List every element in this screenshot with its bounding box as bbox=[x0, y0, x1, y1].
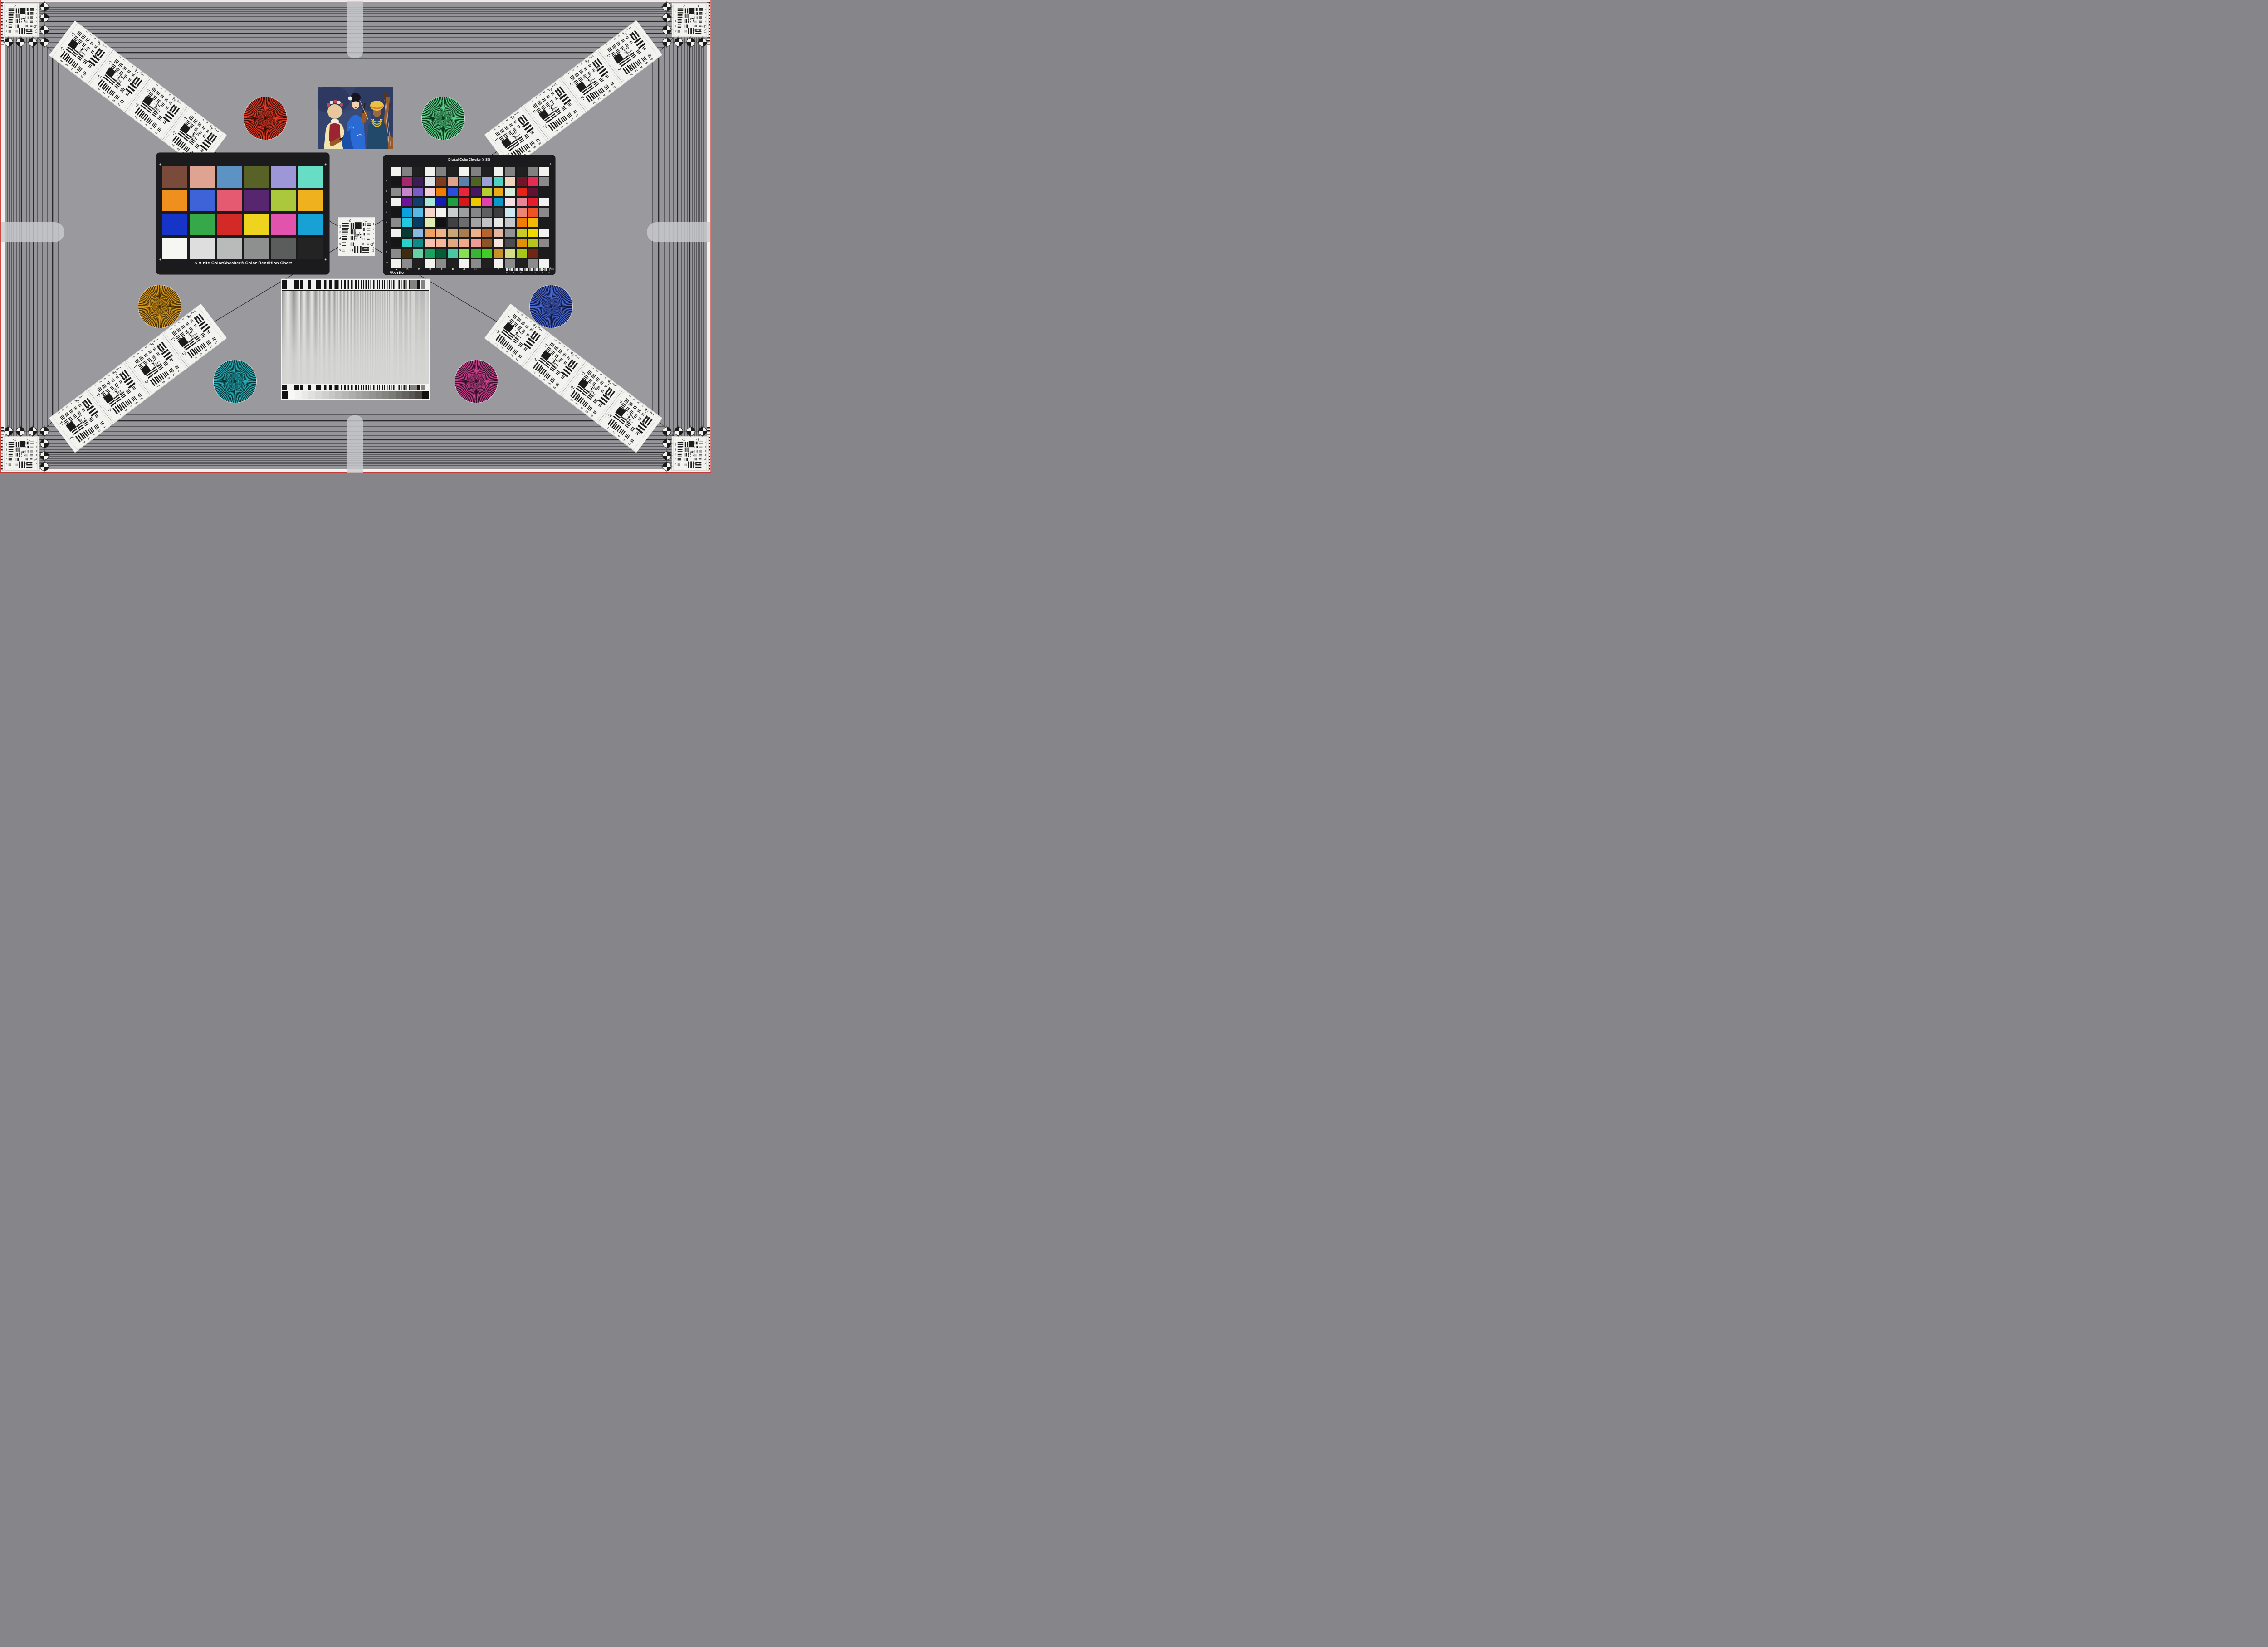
colorchecker-grid bbox=[162, 166, 323, 259]
sg-patch bbox=[539, 177, 549, 186]
grayscale-step-wedge bbox=[282, 391, 429, 399]
colorchecker-title: ❊ x-rite ColorChecker® Color Rendition C… bbox=[156, 261, 329, 266]
sg-row-label: 1 bbox=[386, 171, 388, 174]
ruler-number: 4 bbox=[534, 272, 536, 274]
sg-patch bbox=[471, 198, 481, 206]
sg-patch bbox=[413, 249, 423, 258]
sg-row-label: 9 bbox=[386, 251, 388, 254]
cc-patch bbox=[271, 166, 296, 188]
sg-row-label: 5 bbox=[386, 211, 388, 214]
center-usaf-target bbox=[338, 217, 375, 256]
wedge-step bbox=[376, 391, 382, 399]
sg-patch bbox=[391, 177, 401, 186]
wedge-step bbox=[288, 391, 295, 399]
sg-patch bbox=[539, 218, 549, 227]
sg-patch bbox=[402, 167, 412, 176]
sg-patch bbox=[539, 208, 549, 217]
bar-segment bbox=[374, 280, 392, 289]
sg-row-label: 6 bbox=[386, 221, 388, 224]
ruler-number: 3 bbox=[528, 272, 529, 274]
sg-patch bbox=[425, 208, 435, 217]
sg-patch bbox=[494, 208, 503, 217]
sg-patch bbox=[494, 167, 503, 176]
sg-patch bbox=[471, 249, 481, 258]
sg-patch bbox=[482, 208, 492, 217]
sg-patch bbox=[459, 259, 469, 268]
cc-patch bbox=[244, 238, 269, 259]
sweep-bars-bottom bbox=[282, 385, 429, 390]
wedge-step bbox=[349, 391, 356, 399]
bar-segment bbox=[319, 280, 337, 289]
sg-patch bbox=[448, 229, 458, 237]
cc-patch bbox=[217, 166, 242, 188]
sg-patch bbox=[459, 229, 469, 237]
cc-patch bbox=[244, 190, 269, 212]
sg-patch bbox=[391, 198, 401, 206]
sg-patch bbox=[505, 259, 515, 268]
sg-grid bbox=[391, 167, 549, 268]
sg-patch bbox=[482, 167, 492, 176]
sg-patch bbox=[425, 218, 435, 227]
wedge-step bbox=[335, 391, 342, 399]
bar-segment bbox=[392, 280, 410, 289]
bar-segment bbox=[411, 280, 429, 289]
sg-patch bbox=[505, 188, 515, 196]
sg-patch bbox=[402, 249, 412, 258]
wedge-step bbox=[369, 391, 376, 399]
sweep-segment bbox=[300, 291, 318, 384]
bottom-center-tab bbox=[347, 415, 363, 473]
sg-patch bbox=[528, 177, 538, 186]
wedge-step bbox=[402, 391, 409, 399]
sg-patch bbox=[459, 218, 469, 227]
sg-row-label: 10 bbox=[386, 261, 388, 264]
sg-patch bbox=[402, 177, 412, 186]
teal-star bbox=[213, 360, 257, 403]
sg-patch bbox=[391, 229, 401, 237]
bar-segment bbox=[337, 385, 355, 390]
sg-patch bbox=[391, 167, 401, 176]
bar-segment bbox=[392, 385, 410, 390]
sg-patch bbox=[436, 239, 446, 247]
sg-patch bbox=[482, 259, 492, 268]
wedge-step bbox=[415, 391, 422, 399]
wedge-end-cap bbox=[422, 391, 429, 399]
colorchecker-sg-card: Digital ColorChecker® SG 12345678910 ABC… bbox=[383, 155, 555, 275]
sg-patch bbox=[482, 229, 492, 237]
sg-patch bbox=[402, 198, 412, 206]
sg-patch bbox=[448, 167, 458, 176]
cc-patch bbox=[244, 166, 269, 188]
sg-patch bbox=[471, 177, 481, 186]
sg-patch bbox=[494, 239, 503, 247]
sg-patch bbox=[413, 198, 423, 206]
sg-patch bbox=[517, 218, 527, 227]
sg-patch bbox=[528, 208, 538, 217]
sg-patch bbox=[517, 177, 527, 186]
sg-patch bbox=[494, 249, 503, 258]
wedge-step bbox=[396, 391, 402, 399]
portrait-photo bbox=[318, 87, 393, 149]
sg-patch bbox=[413, 259, 423, 268]
cc-patch bbox=[162, 238, 187, 259]
sweep-segment bbox=[374, 291, 392, 384]
ruler-ticks bbox=[506, 268, 550, 271]
sg-patch bbox=[459, 177, 469, 186]
registration-plus: + bbox=[159, 163, 161, 166]
sweep-segment bbox=[282, 291, 300, 384]
sg-title: Digital ColorChecker® SG bbox=[383, 157, 555, 161]
sg-col-label: C bbox=[413, 268, 425, 271]
bar-segment bbox=[282, 385, 300, 390]
sg-col-label: G bbox=[459, 268, 470, 271]
sg-patch bbox=[425, 259, 435, 268]
wedge-end-cap bbox=[282, 391, 288, 399]
sweep-segment bbox=[337, 291, 355, 384]
bar-segment bbox=[337, 280, 355, 289]
sg-patch bbox=[425, 188, 435, 196]
sg-patch bbox=[402, 239, 412, 247]
sg-patch bbox=[505, 167, 515, 176]
sg-patch bbox=[539, 239, 549, 247]
sg-patch bbox=[402, 208, 412, 217]
sg-patch bbox=[482, 239, 492, 247]
sg-patch bbox=[436, 198, 446, 206]
sg-patch bbox=[436, 167, 446, 176]
registration-plus: + bbox=[387, 267, 389, 270]
cc-patch bbox=[244, 214, 269, 235]
wedge-step bbox=[342, 391, 349, 399]
sg-patch bbox=[482, 188, 492, 196]
sg-patch bbox=[539, 249, 549, 258]
sg-patch bbox=[425, 239, 435, 247]
sg-patch bbox=[436, 218, 446, 227]
sweep-segment bbox=[319, 291, 337, 384]
sg-patch bbox=[402, 259, 412, 268]
sg-patch bbox=[425, 177, 435, 186]
sweep-segment bbox=[392, 291, 410, 384]
sg-patch bbox=[413, 229, 423, 237]
sg-patch bbox=[448, 218, 458, 227]
sg-patch bbox=[402, 229, 412, 237]
sg-patch bbox=[528, 249, 538, 258]
sg-patch bbox=[539, 198, 549, 206]
sg-patch bbox=[517, 208, 527, 217]
sg-patch bbox=[505, 218, 515, 227]
test-chart-scene: ❊ x-rite ColorChecker® Color Rendition C… bbox=[0, 0, 711, 473]
sg-row-labels: 12345678910 bbox=[386, 167, 388, 268]
bar-segment bbox=[282, 280, 300, 289]
cc-patch bbox=[298, 166, 323, 188]
sg-patch bbox=[517, 229, 527, 237]
blue-star bbox=[529, 285, 573, 328]
sg-patch bbox=[391, 188, 401, 196]
magenta-star bbox=[455, 360, 498, 403]
sg-patch bbox=[494, 198, 503, 206]
bar-segment bbox=[319, 385, 337, 390]
cc-patch bbox=[162, 166, 187, 188]
sg-patch bbox=[517, 167, 527, 176]
sg-patch bbox=[413, 208, 423, 217]
sg-col-label: J bbox=[493, 268, 504, 271]
sg-row-label: 8 bbox=[386, 241, 388, 244]
sg-row-label: 7 bbox=[386, 231, 388, 234]
wedge-step bbox=[329, 391, 336, 399]
sg-patch bbox=[436, 208, 446, 217]
wedge-step bbox=[308, 391, 315, 399]
sg-logo: ❊x-rite bbox=[390, 270, 404, 275]
corner-target-top-right bbox=[657, 0, 711, 50]
ruler-number: 2 bbox=[520, 272, 522, 274]
sg-patch bbox=[482, 249, 492, 258]
sg-patch bbox=[528, 218, 538, 227]
registration-plus: + bbox=[324, 258, 327, 262]
sg-patch bbox=[391, 249, 401, 258]
sg-patch bbox=[425, 198, 435, 206]
sg-col-label: I bbox=[481, 268, 493, 271]
sg-patch bbox=[436, 177, 446, 186]
xrite-logo-icon: ❊ bbox=[194, 261, 198, 266]
orange-star bbox=[138, 285, 181, 328]
xrite-logo-icon: ❊ bbox=[390, 270, 393, 275]
cc-patch bbox=[190, 238, 215, 259]
sg-patch bbox=[471, 229, 481, 237]
red-star bbox=[244, 97, 287, 140]
sg-row-label: 4 bbox=[386, 201, 388, 204]
corner-target-bottom-right bbox=[657, 424, 711, 473]
sg-patch bbox=[413, 218, 423, 227]
cc-patch bbox=[162, 214, 187, 235]
sg-patch bbox=[494, 229, 503, 237]
sg-patch bbox=[539, 167, 549, 176]
colorchecker-24-card: ❊ x-rite ColorChecker® Color Rendition C… bbox=[156, 153, 329, 274]
ruler-number: 6 bbox=[548, 272, 550, 274]
woman3-turban bbox=[370, 101, 384, 111]
wedge-step bbox=[315, 391, 322, 399]
cc-patch bbox=[190, 190, 215, 212]
sg-patch bbox=[402, 218, 412, 227]
sg-patch bbox=[505, 229, 515, 237]
sweep-gradient-area bbox=[282, 291, 429, 384]
sg-patch bbox=[539, 259, 549, 268]
wedge-step bbox=[322, 391, 329, 399]
sweep-bars-top bbox=[282, 280, 429, 289]
sg-patch bbox=[482, 198, 492, 206]
bar-segment bbox=[374, 385, 392, 390]
registration-plus: + bbox=[387, 162, 389, 166]
sg-patch bbox=[391, 218, 401, 227]
top-center-tab bbox=[347, 1, 363, 58]
cc-patch bbox=[190, 166, 215, 188]
sg-col-label: D bbox=[425, 268, 436, 271]
sg-patch bbox=[528, 259, 538, 268]
sg-patch bbox=[494, 177, 503, 186]
sg-patch bbox=[494, 218, 503, 227]
sg-patch bbox=[494, 259, 503, 268]
sg-patch bbox=[528, 198, 538, 206]
bar-segment bbox=[356, 385, 374, 390]
sg-patch bbox=[448, 188, 458, 196]
cc-patch bbox=[162, 190, 187, 212]
sg-patch bbox=[505, 198, 515, 206]
sg-col-label: F bbox=[447, 268, 459, 271]
right-center-arm bbox=[647, 222, 710, 242]
colorchecker-title-text: ColorChecker® Color Rendition Chart bbox=[211, 261, 292, 266]
cc-patch bbox=[271, 190, 296, 212]
sg-patch bbox=[528, 239, 538, 247]
sg-patch bbox=[528, 229, 538, 237]
colorchecker-logo-text: x-rite bbox=[199, 261, 210, 266]
sg-patch bbox=[413, 239, 423, 247]
ruler-number: 1 bbox=[513, 272, 515, 274]
sg-row-label: 3 bbox=[386, 191, 388, 194]
sg-patch bbox=[436, 229, 446, 237]
sg-patch bbox=[459, 167, 469, 176]
sg-patch bbox=[413, 167, 423, 176]
sg-patch bbox=[436, 188, 446, 196]
corner-target-bottom-left bbox=[0, 424, 54, 473]
sg-patch bbox=[471, 239, 481, 247]
cc-patch bbox=[298, 190, 323, 212]
sg-patch bbox=[505, 208, 515, 217]
sg-patch bbox=[448, 239, 458, 247]
registration-plus: + bbox=[549, 162, 552, 166]
sg-patch bbox=[448, 177, 458, 186]
woman1-face bbox=[331, 107, 339, 117]
sg-patch bbox=[517, 259, 527, 268]
sg-row-label: 2 bbox=[386, 181, 388, 184]
sg-patch bbox=[528, 188, 538, 196]
sg-patch bbox=[494, 188, 503, 196]
sg-patch bbox=[436, 259, 446, 268]
sg-patch bbox=[459, 188, 469, 196]
sg-patch bbox=[517, 198, 527, 206]
green-star bbox=[421, 97, 465, 140]
sg-patch bbox=[425, 229, 435, 237]
registration-plus: + bbox=[324, 163, 327, 166]
sg-patch bbox=[471, 208, 481, 217]
sg-patch bbox=[539, 188, 549, 196]
sg-patch bbox=[471, 259, 481, 268]
registration-plus: + bbox=[159, 258, 161, 262]
sg-patch bbox=[459, 198, 469, 206]
sg-patch bbox=[471, 218, 481, 227]
sg-patch bbox=[425, 249, 435, 258]
sg-patch bbox=[459, 249, 469, 258]
ruler-number: 5 bbox=[542, 272, 543, 274]
bar-segment bbox=[300, 280, 318, 289]
sg-patch bbox=[471, 167, 481, 176]
sg-patch bbox=[402, 188, 412, 196]
sg-patch bbox=[425, 167, 435, 176]
sg-mm-ruler: 0123456 mm bbox=[506, 268, 550, 274]
sg-patch bbox=[459, 239, 469, 247]
cc-patch bbox=[217, 238, 242, 259]
sg-col-label: H bbox=[470, 268, 481, 271]
sweep-segment bbox=[411, 291, 429, 384]
frequency-sweep-chart bbox=[281, 279, 430, 400]
sg-patch bbox=[539, 229, 549, 237]
ruler-number: 0 bbox=[506, 272, 508, 274]
corner-target-top-left bbox=[0, 0, 54, 50]
sg-col-label: E bbox=[436, 268, 447, 271]
sg-patch bbox=[448, 198, 458, 206]
cc-patch bbox=[271, 238, 296, 259]
sg-patch bbox=[517, 188, 527, 196]
sg-patch bbox=[517, 249, 527, 258]
left-center-arm bbox=[1, 222, 64, 242]
sweep-segment bbox=[356, 291, 374, 384]
sg-patch bbox=[413, 177, 423, 186]
sg-patch bbox=[505, 177, 515, 186]
bar-segment bbox=[356, 280, 374, 289]
sg-patch bbox=[448, 259, 458, 268]
cc-patch bbox=[217, 214, 242, 235]
sg-patch bbox=[413, 188, 423, 196]
sg-patch bbox=[459, 208, 469, 217]
sg-patch bbox=[505, 249, 515, 258]
sg-patch bbox=[436, 249, 446, 258]
sg-patch bbox=[482, 218, 492, 227]
sg-patch bbox=[471, 188, 481, 196]
bar-segment bbox=[300, 385, 318, 390]
sg-patch bbox=[517, 239, 527, 247]
wedge-step bbox=[302, 391, 309, 399]
wedge-step bbox=[382, 391, 389, 399]
sg-patch bbox=[448, 249, 458, 258]
sg-patch bbox=[391, 259, 401, 268]
sg-patch bbox=[528, 167, 538, 176]
cc-patch bbox=[190, 214, 215, 235]
sg-patch bbox=[448, 208, 458, 217]
cc-patch bbox=[298, 238, 323, 259]
cc-patch bbox=[271, 214, 296, 235]
wedge-step bbox=[362, 391, 369, 399]
cc-patch bbox=[217, 190, 242, 212]
sg-patch bbox=[391, 208, 401, 217]
wedge-step bbox=[389, 391, 396, 399]
sg-patch bbox=[505, 239, 515, 247]
wedge-step bbox=[356, 391, 362, 399]
sg-patch bbox=[391, 239, 401, 247]
sg-patch bbox=[482, 177, 492, 186]
wedge-step bbox=[295, 391, 302, 399]
wedge-step bbox=[409, 391, 416, 399]
bar-segment bbox=[411, 385, 429, 390]
registration-plus: + bbox=[549, 267, 552, 270]
cc-patch bbox=[298, 214, 323, 235]
